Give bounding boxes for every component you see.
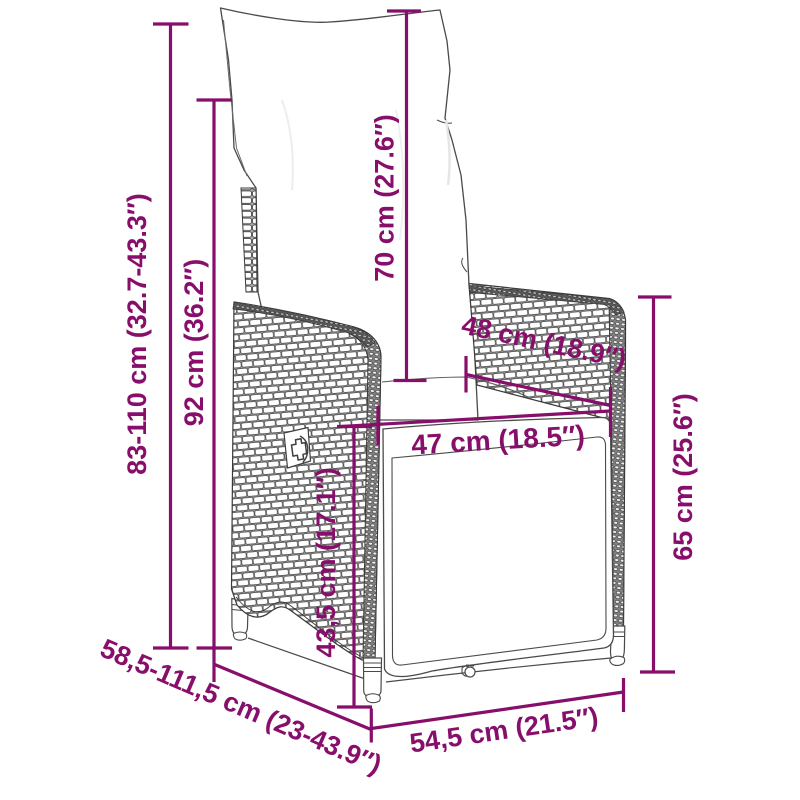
svg-text:65 cm (25.6″): 65 cm (25.6″)	[668, 393, 698, 561]
svg-text:70 cm (27.6″): 70 cm (27.6″)	[370, 114, 400, 282]
svg-text:92 cm (36.2″): 92 cm (36.2″)	[179, 259, 209, 427]
svg-text:43,5 cm (17.1″): 43,5 cm (17.1″)	[311, 467, 341, 657]
svg-text:83-110 cm (32.7-43.3″): 83-110 cm (32.7-43.3″)	[122, 193, 152, 475]
